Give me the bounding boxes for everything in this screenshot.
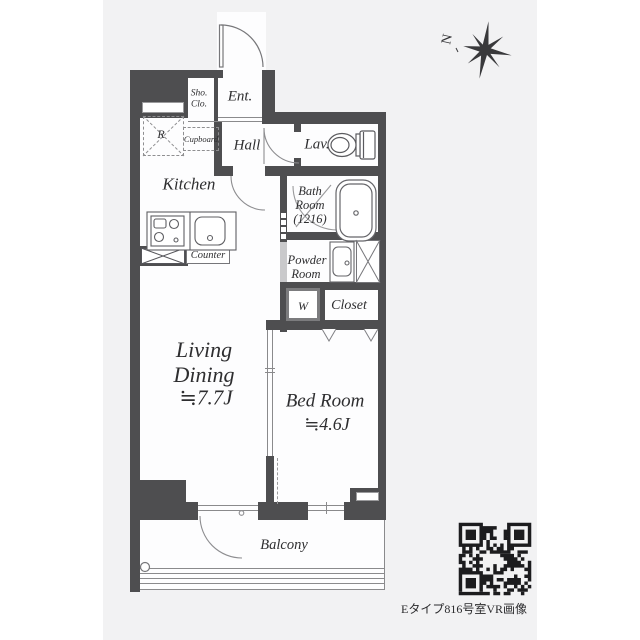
- counter-label: Counter: [191, 251, 225, 262]
- balcony-label: Balcony: [260, 538, 308, 553]
- bedroom-side-window: [356, 492, 379, 501]
- powder-room-label: Room: [291, 268, 320, 281]
- kitchen-window: [142, 102, 184, 113]
- wall: [294, 124, 301, 132]
- wall: [268, 112, 386, 124]
- window-line: [198, 505, 258, 506]
- shoe-closet-label: Sho.: [191, 89, 208, 99]
- balcony-floor: [140, 520, 385, 590]
- sliding-partition-tick: [265, 372, 275, 373]
- shoe-closet-label: Clo.: [191, 100, 207, 110]
- balcony-railing-line: [140, 568, 385, 569]
- wall: [130, 70, 223, 78]
- wall-pillar: [140, 480, 186, 520]
- bathroom-label: Bath: [298, 185, 322, 198]
- closet-label: Closet: [331, 299, 367, 313]
- wall: [320, 290, 325, 322]
- wall: [266, 320, 386, 330]
- living-dining-label: Dining: [173, 364, 234, 386]
- wall: [294, 158, 301, 166]
- bathroom-label: Room: [295, 199, 324, 212]
- pipe-space-box: [356, 240, 380, 283]
- wall: [280, 176, 287, 242]
- entrance-label: Ent.: [228, 90, 253, 105]
- window-tick: [326, 502, 327, 514]
- powder-room-door: [280, 242, 287, 284]
- sliding-partition-tick: [265, 368, 275, 369]
- lavatory-label: Lav.: [304, 138, 329, 153]
- kitchen-label: Kitchen: [163, 176, 216, 193]
- outside-patch: [275, 78, 378, 112]
- wall: [344, 502, 386, 520]
- washer-label: W: [298, 300, 308, 312]
- wall: [214, 166, 233, 176]
- entrance-step-line: [188, 121, 262, 122]
- sliding-partition: [267, 330, 268, 456]
- entrance-step-line: [218, 117, 262, 118]
- wall: [214, 78, 218, 122]
- bedroom-size-label: ≒4.6J: [304, 415, 350, 433]
- powder-room-label: Powder: [288, 254, 327, 267]
- floor-plan-page: N Sho. Clo. Ent. Hall Lav. Bath Room (12…: [0, 0, 640, 640]
- living-dining-label: Living: [176, 339, 232, 361]
- balcony-edge-line: [384, 520, 385, 590]
- balcony-railing-line: [140, 583, 385, 584]
- entrance-door-swing-area: [217, 12, 266, 78]
- counter-hatch-box: [141, 248, 185, 264]
- sliding-partition: [272, 330, 273, 456]
- cupboard-label: Cupboard: [184, 135, 218, 144]
- balcony-edge-line: [140, 589, 385, 590]
- balcony-railing-line: [140, 573, 385, 574]
- living-dining-size-label: ≒7.7J: [179, 388, 232, 409]
- window-line: [198, 510, 258, 511]
- wall: [258, 502, 308, 520]
- wall: [287, 232, 378, 240]
- qr-caption: Eタイプ816号室VR画像: [401, 603, 527, 615]
- dashed-wall-line: [277, 458, 279, 504]
- wall: [266, 456, 274, 506]
- bedroom-label: Bed Room: [286, 392, 365, 411]
- bathroom-size-label: (1216): [293, 213, 326, 226]
- refrigerator-label: R: [157, 128, 164, 140]
- balcony-railing-line: [140, 578, 385, 579]
- hall-label: Hall: [234, 139, 261, 154]
- wall: [265, 166, 386, 176]
